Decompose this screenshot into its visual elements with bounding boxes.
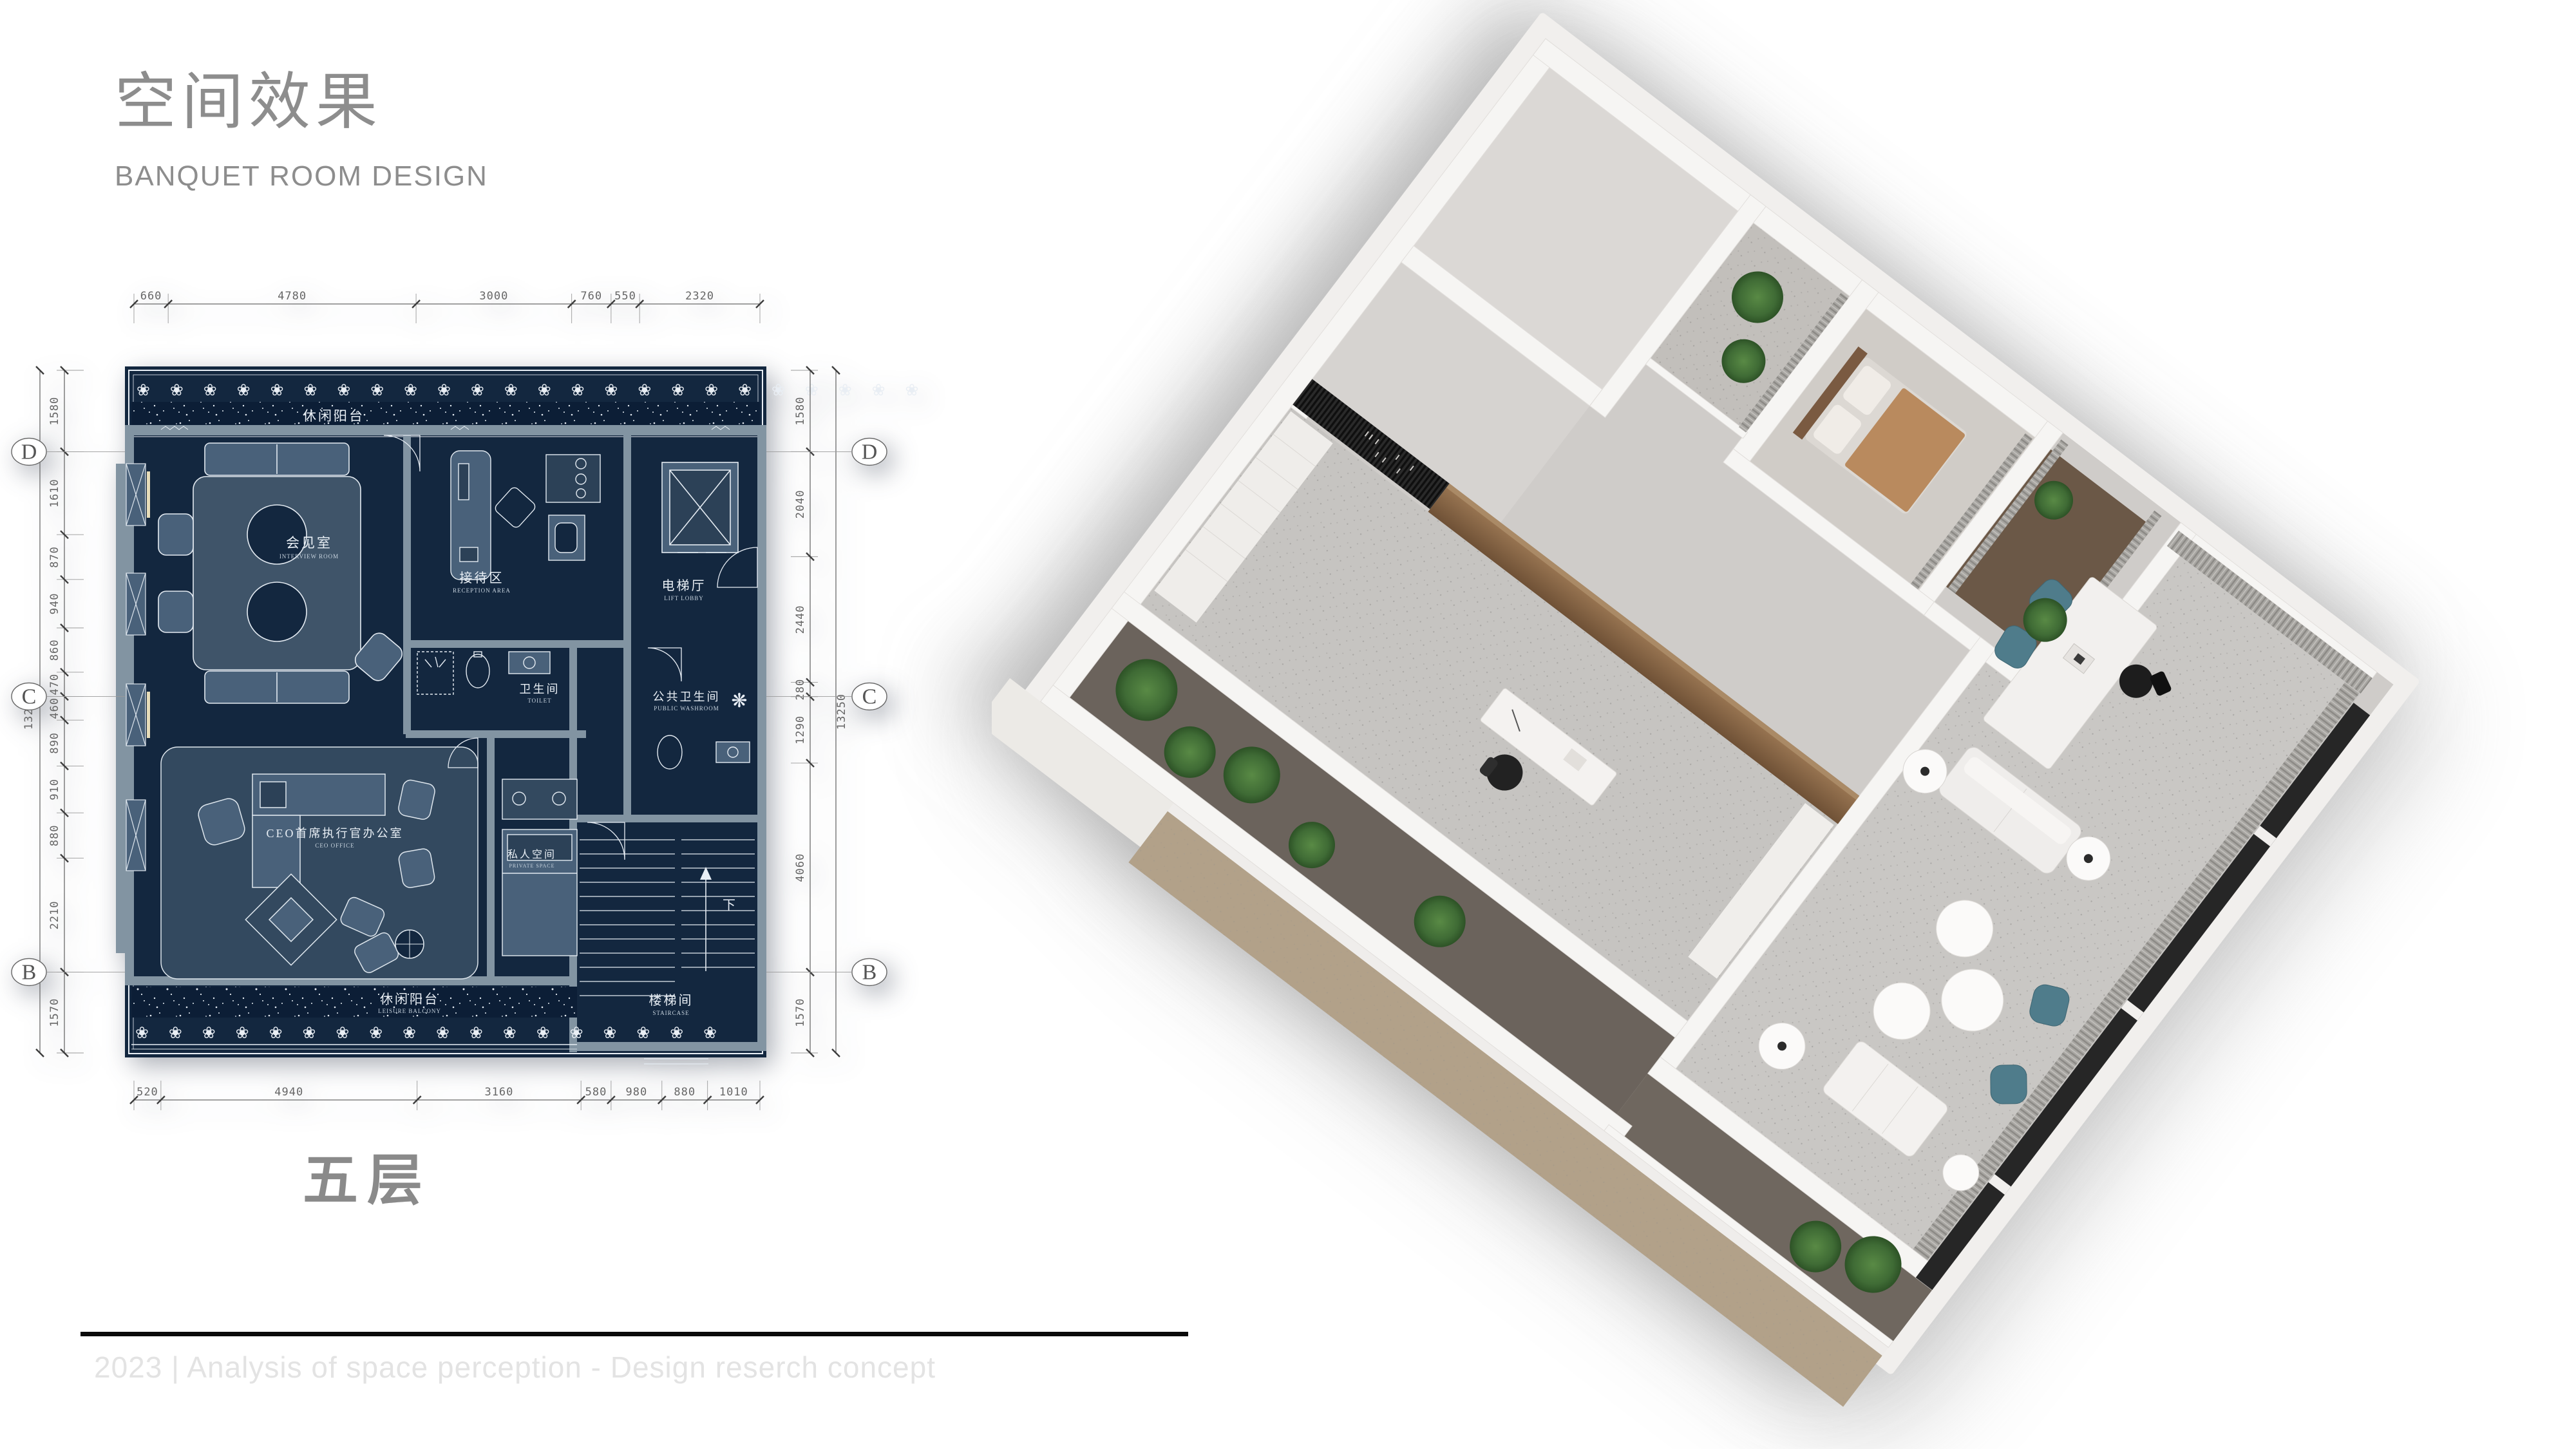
page-title: 空间效果 [115, 52, 488, 141]
dimension-label: 550 [614, 290, 636, 303]
dimension-label: 880 [674, 1086, 696, 1099]
dimension-label: 940 [48, 593, 61, 615]
axonometric-render [992, 6, 2537, 1430]
room-label-toilet-en: TOILET [527, 697, 551, 704]
dimension-label: 3000 [479, 290, 508, 303]
slide: { "page": {"background": "#ffffff"}, "he… [0, 0, 2576, 1449]
dimension-label: 4940 [274, 1086, 303, 1099]
room-label-interview-en: INTERVIEW ROOM [279, 553, 339, 560]
dimension-label: 880 [48, 825, 61, 847]
room-label-lift-zh: 电梯厅 [662, 578, 706, 593]
render-building [992, 6, 2421, 1419]
dimension-label: 660 [140, 290, 162, 303]
dimension-label: 4060 [794, 853, 807, 882]
private-space: 私人空间 PRIVATE SPACE [502, 779, 577, 956]
grid-marker-label: C [22, 685, 37, 708]
room-label-leisure-balcony-bottom-en: LEISURE BALCONY [378, 1008, 441, 1014]
dimension-label: 470 [48, 674, 61, 696]
room-label-leisure-balcony-bottom-zh: 休闲阳台 [380, 992, 439, 1007]
room-label-reception-zh: 接待区 [460, 571, 504, 585]
dimension-label: 870 [48, 546, 61, 568]
floor-label: 五层 [258, 1135, 477, 1215]
dimension-label: 1290 [794, 715, 807, 744]
room-label-toilet-zh: 卫生间 [520, 683, 560, 696]
grid-marker-label: D [21, 440, 37, 464]
room-label-washroom-en: PUBLIC WASHROOM [654, 705, 719, 712]
dimension-label: 2210 [48, 901, 61, 930]
dimension-label: 980 [625, 1086, 647, 1099]
room-label-private-zh: 私人空间 [507, 849, 556, 860]
flower-ornament-row: ❀ ❀ ❀ ❀ ❀ ❀ ❀ ❀ ❀ ❀ ❀ ❀ ❀ ❀ ❀ ❀ ❀ ❀ [135, 1024, 724, 1042]
room-label-leisure-balcony-top-zh: 休闲阳台 [303, 408, 365, 424]
grid-marker-label: C [862, 685, 877, 708]
dimension-label: 520 [137, 1086, 158, 1099]
dimension-label: 1010 [719, 1086, 748, 1099]
room-label-private-en: PRIVATE SPACE [509, 863, 554, 869]
room-label-reception-en: RECEPTION AREA [453, 587, 511, 594]
dimension-label: 580 [585, 1086, 607, 1099]
dimension-total-label: 13250 [835, 694, 848, 730]
room-label-ceo-en: CEO OFFICE [315, 842, 354, 849]
footer-divider [80, 1332, 1188, 1336]
dimension-label: 890 [48, 732, 61, 754]
dimension-label: 1580 [48, 397, 61, 426]
grid-marker-label: B [22, 960, 37, 984]
room-label-ceo-zh: CEO首席执行官办公室 [267, 827, 404, 840]
dimension-label: 280 [794, 679, 807, 701]
dimension-label: 760 [580, 290, 602, 303]
room-label-staircase-zh: 楼梯间 [649, 993, 694, 1008]
plan-body: ❀ ❀ ❀ ❀ ❀ ❀ ❀ ❀ ❀ ❀ ❀ ❀ ❀ ❀ ❀ ❀ ❀ ❀ ❀ ❀ … [116, 366, 921, 1064]
room-label-interview-zh: 会见室 [286, 535, 332, 551]
page-subtitle: BANQUET ROOM DESIGN [115, 160, 488, 193]
dimension-label: 2320 [685, 290, 714, 303]
room-label-staircase-en: STAIRCASE [652, 1010, 689, 1016]
stair-down-label: 下 [723, 898, 735, 913]
dimension-label: 460 [48, 697, 61, 719]
dimension-label: 860 [48, 639, 61, 661]
footer-caption: 2023 | Analysis of space perception - De… [94, 1350, 936, 1385]
room-label-washroom-zh: 公共卫生间 [653, 690, 721, 703]
dimension-label: 2040 [794, 489, 807, 518]
dimension-label: 1570 [48, 998, 61, 1027]
dimension-label: 1570 [794, 998, 807, 1027]
dimension-label: 3160 [484, 1086, 513, 1099]
dimension-label: 1580 [794, 397, 807, 426]
dimension-label: 1610 [48, 478, 61, 507]
grid-marker-label: B [862, 960, 877, 984]
room-label-lift-en: LIFT LOBBY [664, 595, 704, 601]
washroom-plant-icon: ❋ [731, 690, 747, 712]
header: 空间效果 BANQUET ROOM DESIGN [115, 52, 488, 193]
dimension-label: 4780 [278, 290, 307, 303]
ceo-office: CEO首席执行官办公室 CEO OFFICE [161, 747, 478, 979]
floor-plan-drawing: ❀ ❀ ❀ ❀ ❀ ❀ ❀ ❀ ❀ ❀ ❀ ❀ ❀ ❀ ❀ ❀ ❀ ❀ ❀ ❀ … [0, 270, 921, 1211]
dimension-label: 2440 [794, 605, 807, 634]
grid-marker-label: D [862, 440, 878, 464]
dimension-label: 910 [48, 779, 61, 800]
